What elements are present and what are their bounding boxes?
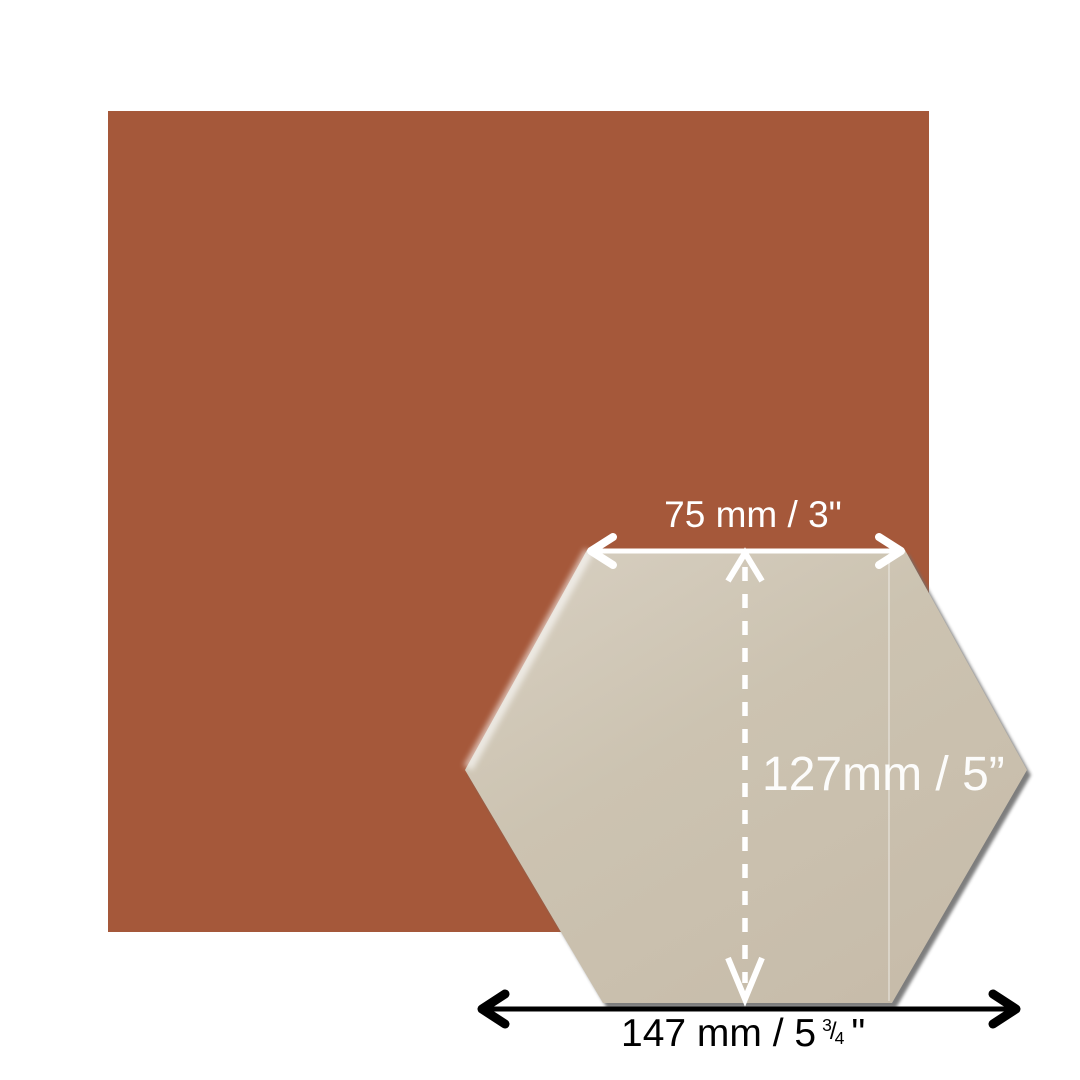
top-width-label: 75 mm / 3" xyxy=(664,496,842,533)
tile-dimension-diagram: 75 mm / 3" 127mm / 5” 147 mm / 53/4" xyxy=(0,0,1080,1080)
fraction-denominator: 4 xyxy=(835,1028,845,1048)
height-label: 127mm / 5” xyxy=(762,751,1005,799)
full-width-label: 147 mm / 53/4" xyxy=(621,1014,865,1053)
full-width-value: 147 mm / 5 xyxy=(621,1012,816,1055)
full-width-fraction: 3/4 xyxy=(822,1014,844,1053)
tiles-graphic xyxy=(0,0,1080,1080)
full-width-unit: " xyxy=(851,1012,865,1055)
